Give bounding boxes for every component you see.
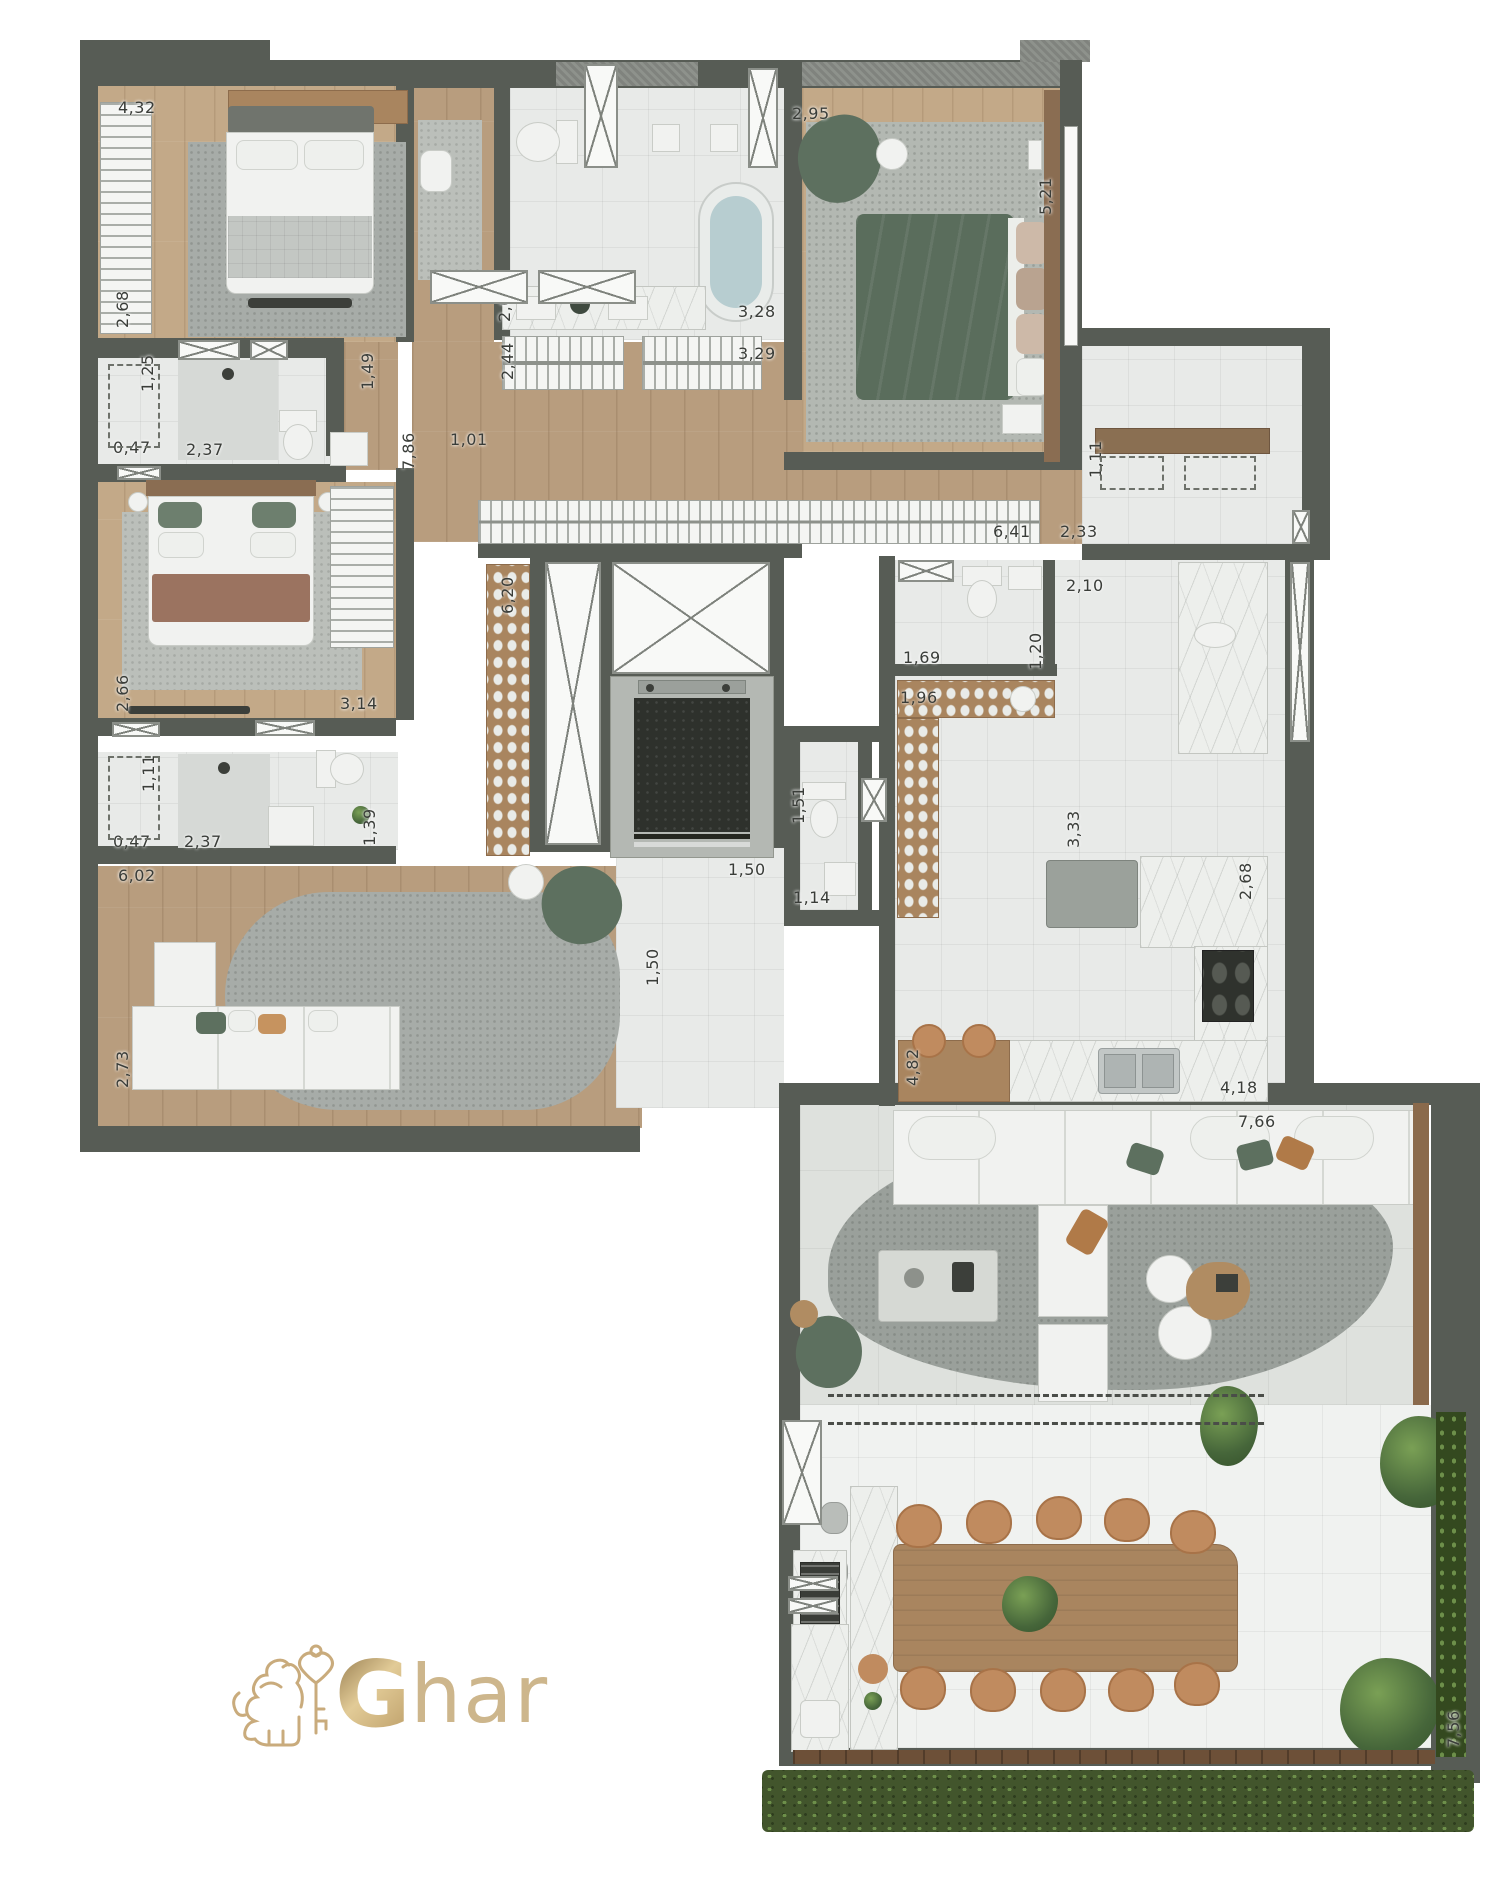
dimension-label: 2,68 xyxy=(113,290,132,328)
round-table xyxy=(876,138,908,170)
toilet xyxy=(802,782,846,800)
dimension-label: 7,56 xyxy=(1444,1710,1463,1748)
counter-stool xyxy=(820,1502,848,1534)
wall-segment xyxy=(1082,328,1310,346)
dimension-label: 1,69 xyxy=(903,648,941,667)
dining-chair xyxy=(1174,1662,1220,1706)
bed-bench xyxy=(248,298,352,308)
shower-head-icon xyxy=(218,762,230,774)
window-x-panel xyxy=(584,64,618,168)
dimension-label: 4,82 xyxy=(903,1048,922,1086)
dimension-label: 2,66 xyxy=(113,674,132,712)
window-slot xyxy=(1064,126,1078,346)
table-tray xyxy=(952,1262,974,1292)
closet-hanger-box xyxy=(502,336,624,390)
wall-segment xyxy=(80,60,414,86)
logo-text-bold: G xyxy=(335,1649,411,1741)
shower-control xyxy=(652,124,680,152)
bar-stool xyxy=(962,1024,996,1058)
pillow xyxy=(304,140,364,170)
elevator-doors xyxy=(634,842,750,847)
toilet-bowl xyxy=(810,800,838,838)
sofa-chaise xyxy=(154,942,216,1010)
dimension-label: 4,32 xyxy=(118,98,156,117)
sliding-door-dashed-line xyxy=(828,1422,1264,1425)
dining-chair xyxy=(1104,1498,1150,1542)
dining-chair xyxy=(1036,1496,1082,1540)
wall-segment xyxy=(879,556,895,1106)
elevator-dot xyxy=(722,684,730,692)
bedside-lamp xyxy=(128,492,148,512)
dimension-label: 2,33 xyxy=(1060,522,1098,541)
bowl xyxy=(858,1654,888,1684)
terrace-sink xyxy=(800,1700,840,1738)
window-x-panel xyxy=(255,720,315,736)
dimension-label: 1,01 xyxy=(450,430,488,449)
side-table xyxy=(508,864,544,900)
sink-bowl xyxy=(1104,1054,1136,1088)
window-x-panel xyxy=(898,560,954,582)
dimension-label: 3,28 xyxy=(738,302,776,321)
dimension-label: 3,29 xyxy=(738,344,776,363)
toilet-bowl xyxy=(330,753,364,785)
dashed-outline-box xyxy=(108,756,160,840)
dimension-label: 5,21 xyxy=(1036,177,1055,215)
window-x-panel xyxy=(117,466,161,480)
pillow xyxy=(196,1012,226,1034)
dimension-label: 6,41 xyxy=(993,522,1031,541)
island-counter xyxy=(850,1486,898,1750)
sliding-door-dashed-line xyxy=(828,1394,1264,1397)
coffee-table xyxy=(878,1250,998,1322)
dining-chair xyxy=(1040,1668,1086,1712)
pillow xyxy=(158,532,204,558)
side-table-wood xyxy=(790,1300,818,1328)
elevator-doors xyxy=(634,834,750,839)
dimension-label: 2,95 xyxy=(792,104,830,123)
dimension-label: 2,44 xyxy=(498,342,517,380)
window-x-panel xyxy=(250,340,288,360)
floor-plan: Ghar 4,322,681,250,472,371,497,861,012,6… xyxy=(0,0,1500,1883)
pillow xyxy=(236,140,298,170)
dimension-label: 1,39 xyxy=(360,808,379,846)
bbq-grill xyxy=(800,1562,840,1624)
dimension-label: 1,50 xyxy=(643,948,662,986)
wall-segment xyxy=(396,468,414,720)
service-counter xyxy=(1095,428,1270,454)
dimension-label: 2,37 xyxy=(186,440,224,459)
wall-control xyxy=(1028,140,1042,170)
window-x-panel xyxy=(788,1576,838,1591)
dimension-label: 2,68 xyxy=(1236,862,1255,900)
wall-segment xyxy=(80,60,98,1152)
table-decor xyxy=(904,1268,924,1288)
double-bed-duvet xyxy=(856,214,1014,400)
dimension-label: 6,02 xyxy=(118,866,156,885)
hall-floor xyxy=(616,848,784,1108)
shower-control xyxy=(710,124,738,152)
toilet-bowl xyxy=(283,424,313,460)
shower-head-icon xyxy=(222,368,234,380)
armchair xyxy=(420,150,452,192)
dining-chair xyxy=(966,1500,1012,1544)
dimension-label: 4,18 xyxy=(1220,1078,1258,1097)
vertical-garden xyxy=(1436,1412,1466,1757)
wood-deck-strip xyxy=(793,1750,1435,1764)
bed-headboard xyxy=(146,480,316,496)
round-basin xyxy=(1010,686,1036,712)
pillow xyxy=(250,532,296,558)
picture-frame xyxy=(1216,1274,1238,1292)
pantry-counter xyxy=(1178,562,1268,754)
pillow xyxy=(252,502,296,528)
sliding-door-track xyxy=(1413,1103,1429,1405)
dashed-outline-box xyxy=(108,364,160,448)
dimension-label: 7,66 xyxy=(1238,1112,1276,1131)
brand-logo: Ghar xyxy=(225,1622,555,1767)
pillow xyxy=(228,1010,256,1032)
elevator-dot xyxy=(646,684,654,692)
pillow xyxy=(308,1010,338,1032)
dining-chair xyxy=(896,1504,942,1548)
window-x-panel xyxy=(788,1598,838,1614)
window-x-panel xyxy=(538,270,636,304)
dimension-label: 2,10 xyxy=(1066,576,1104,595)
refrigerator xyxy=(1046,860,1138,928)
wall-segment xyxy=(80,1126,640,1152)
wardrobe-rack xyxy=(478,500,1040,544)
dressing-rug xyxy=(418,120,482,280)
wall-segment xyxy=(784,910,888,926)
dimension-label: 2,73 xyxy=(113,1050,132,1088)
window-x-panel xyxy=(1290,562,1310,742)
washbasin xyxy=(268,806,314,846)
tv-console xyxy=(128,706,250,714)
cooktop xyxy=(1202,950,1254,1022)
pillow xyxy=(158,502,202,528)
dimension-label: 2,37 xyxy=(184,832,222,851)
dimension-label: 1,50 xyxy=(728,860,766,879)
closet-strip xyxy=(330,486,394,648)
toilet-bowl xyxy=(516,122,560,162)
wall-segment xyxy=(858,742,872,912)
dining-chair xyxy=(970,1668,1016,1712)
dining-chair xyxy=(1170,1510,1216,1554)
pillow xyxy=(258,1014,286,1034)
bed-headboard xyxy=(228,106,374,134)
wall-segment xyxy=(478,542,802,558)
dashed-outline-box xyxy=(1100,456,1164,490)
bathtub-water xyxy=(710,196,762,308)
dimension-label: 1,14 xyxy=(793,888,831,907)
concrete-parapet xyxy=(556,62,698,86)
dimension-label: 3,33 xyxy=(1064,810,1083,848)
window-x-panel xyxy=(612,562,770,674)
bed-blanket xyxy=(228,216,372,278)
sofa-cushion xyxy=(908,1116,996,1160)
elevator-cab xyxy=(634,698,750,832)
window-x-panel xyxy=(178,340,240,360)
dimension-label: 6,20 xyxy=(498,576,517,614)
planter-hedge xyxy=(762,1770,1474,1832)
bed-blanket xyxy=(152,574,310,622)
dimension-label: 1,20 xyxy=(1026,632,1045,670)
window-x-panel xyxy=(430,270,528,304)
window-x-panel xyxy=(782,1420,822,1525)
dashed-outline-box xyxy=(1184,456,1256,490)
ottoman xyxy=(1038,1324,1108,1402)
window-x-panel xyxy=(748,68,778,168)
dimension-label: 7,86 xyxy=(399,432,418,470)
dining-chair xyxy=(1108,1668,1154,1712)
headboard-panel xyxy=(1044,90,1060,462)
wall-segment xyxy=(1082,544,1306,560)
concrete-parapet xyxy=(800,62,1060,86)
dimension-label: 1,51 xyxy=(789,786,808,824)
lion-key-icon xyxy=(225,1635,335,1755)
sink-bowl xyxy=(1142,1054,1174,1088)
dining-table xyxy=(893,1544,1238,1672)
washbasin xyxy=(1008,566,1042,590)
nightstand xyxy=(1002,404,1042,434)
dimension-label: 3,14 xyxy=(340,694,378,713)
dimension-label: 1,96 xyxy=(900,688,938,707)
logo-text: har xyxy=(411,1655,550,1735)
concrete-parapet xyxy=(1020,40,1090,62)
window-x-panel xyxy=(545,562,601,845)
dimension-label: 1,49 xyxy=(358,352,377,390)
oval-sink xyxy=(1194,622,1236,648)
window-x-panel xyxy=(861,778,887,822)
window-x-panel xyxy=(1292,510,1310,544)
washbasin xyxy=(330,432,368,466)
wall-segment xyxy=(784,452,1082,470)
glassware-column xyxy=(897,718,939,918)
window-x-panel xyxy=(112,722,160,737)
toilet-bowl xyxy=(967,580,997,618)
dining-chair xyxy=(900,1666,946,1710)
